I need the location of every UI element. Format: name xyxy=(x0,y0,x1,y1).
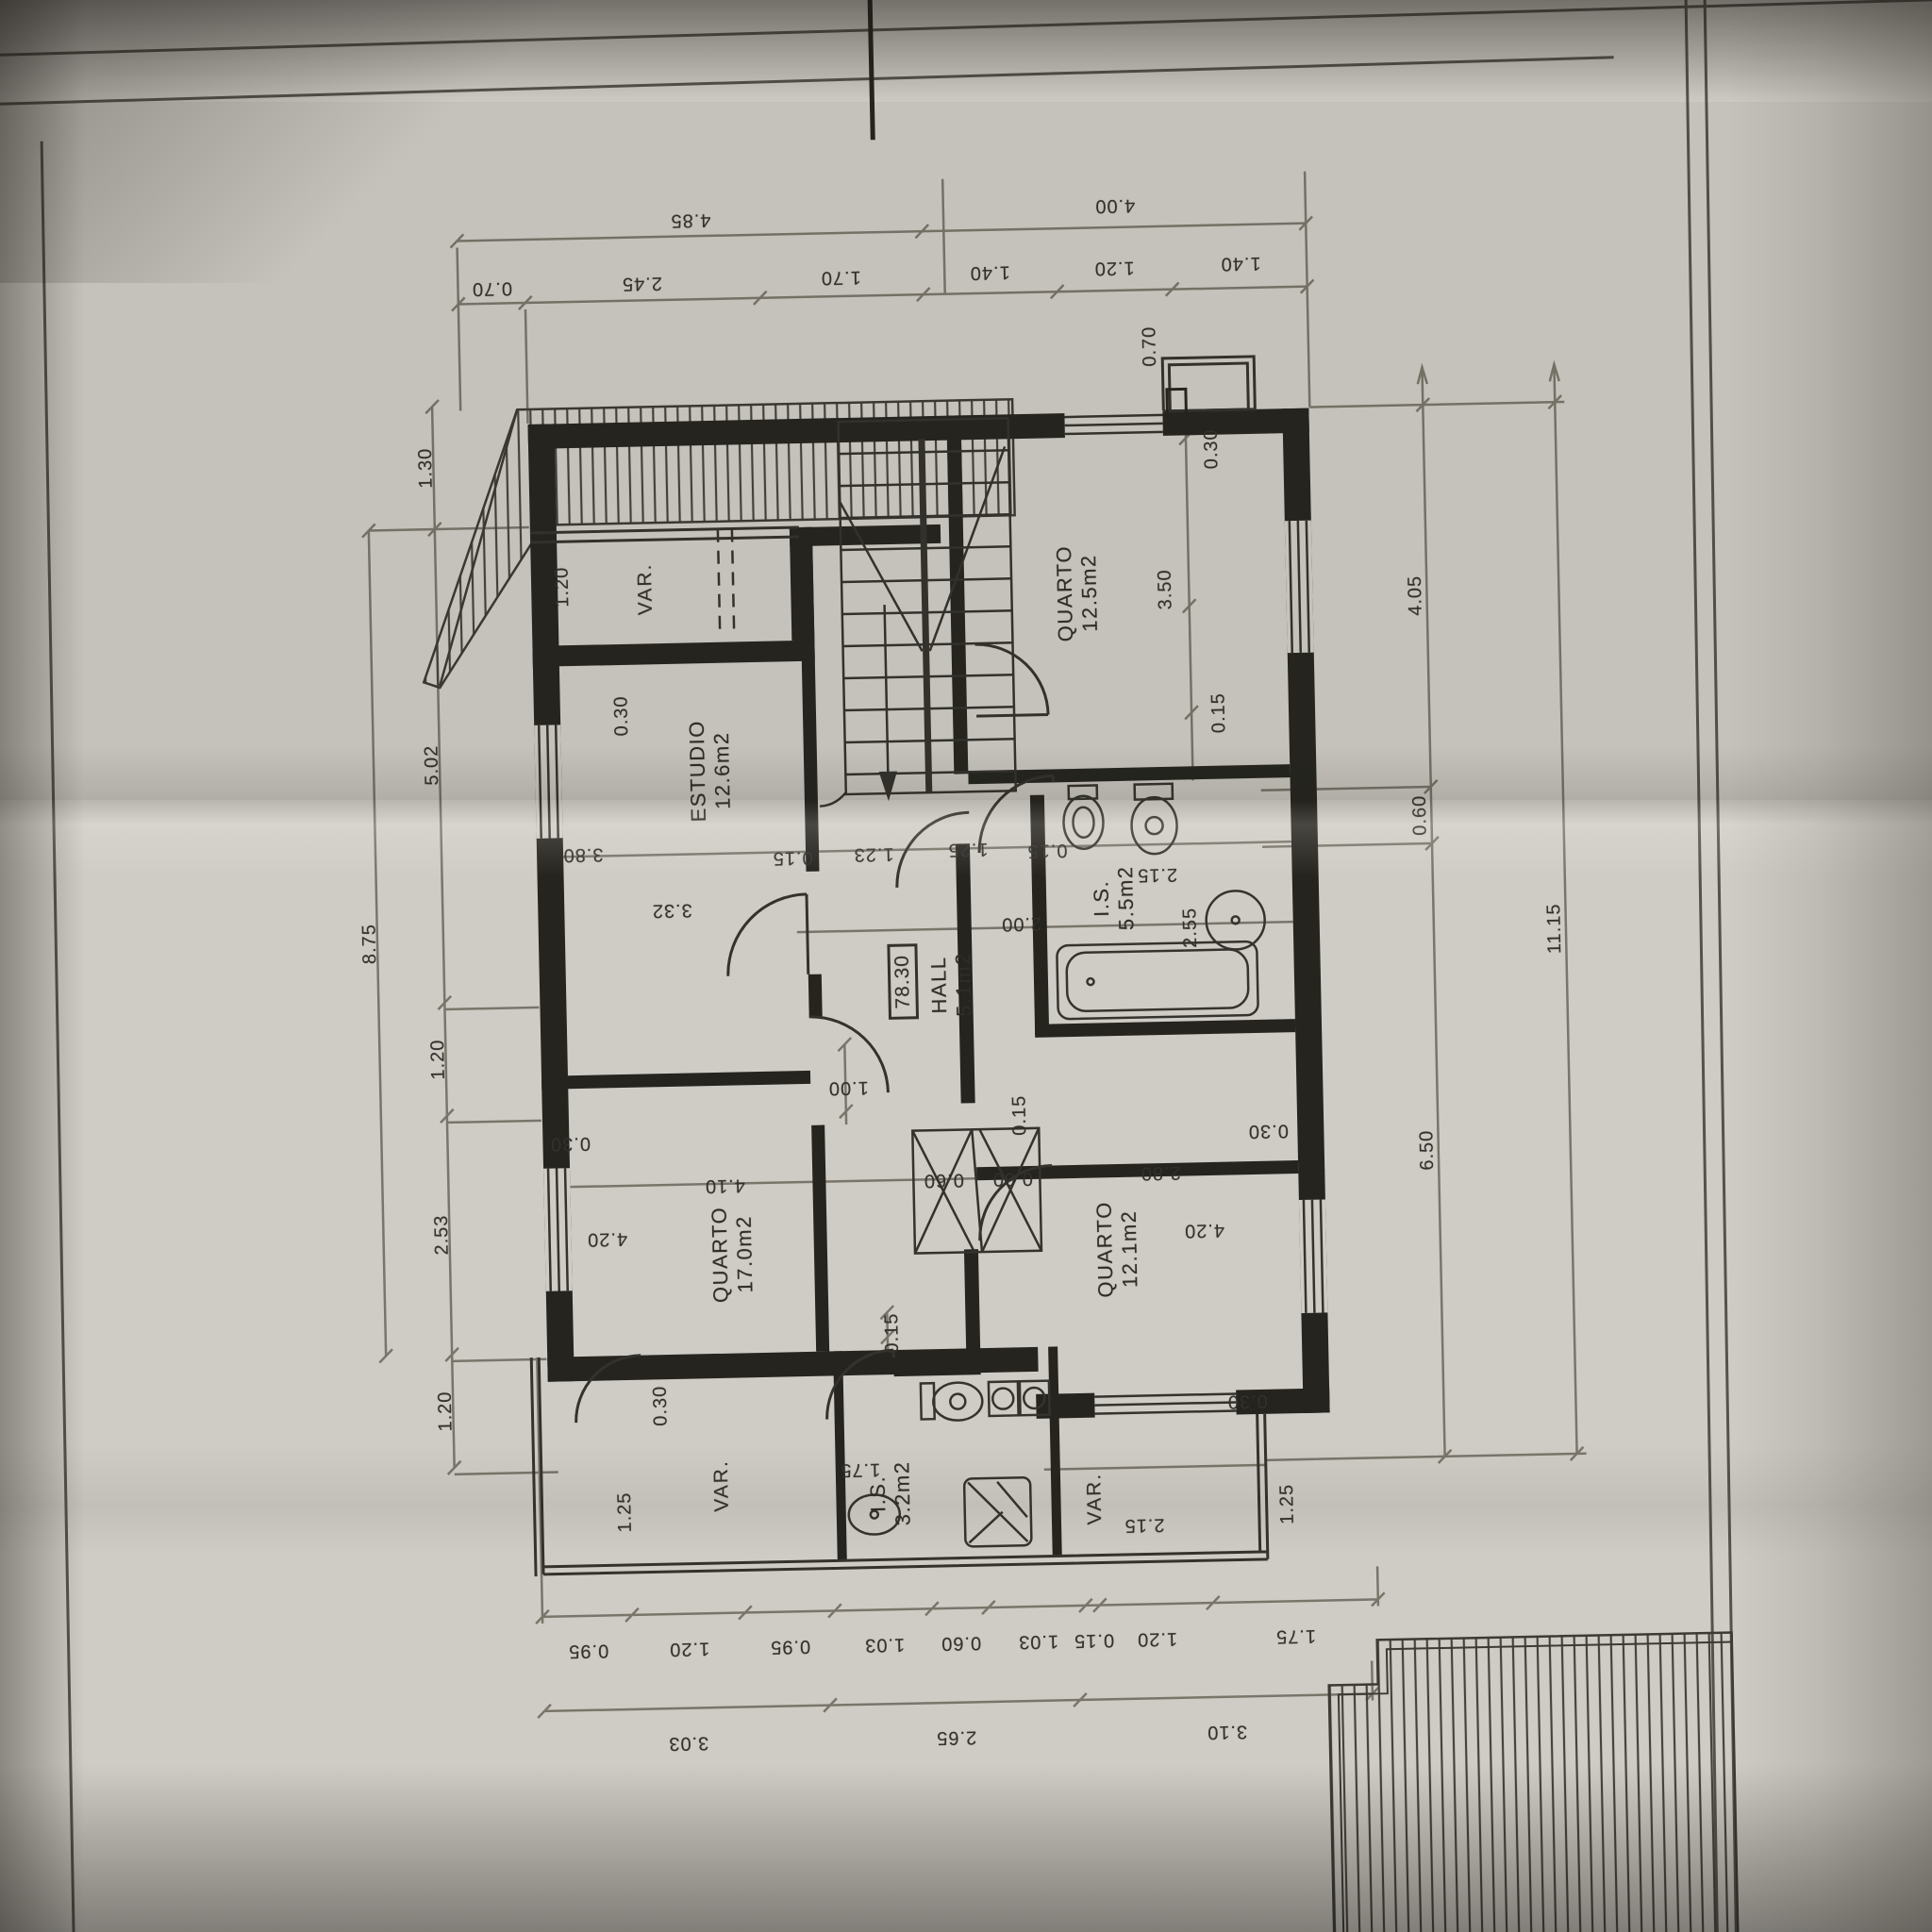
room-area: 17.0m2 xyxy=(732,1215,758,1293)
dim-label: 2.65 xyxy=(936,1726,976,1748)
room-label-quarto-1: QUARTO 12.5m2 xyxy=(1052,544,1104,641)
dim-label: 2.53 xyxy=(431,1214,453,1255)
dim-label: 0.15 xyxy=(1008,1095,1030,1136)
dim-label: 1.75 xyxy=(840,1458,880,1480)
level-mark: 78.30 xyxy=(887,944,918,1020)
dim-label: 5.02 xyxy=(421,744,442,785)
dim-label: 4.00 xyxy=(1094,194,1135,216)
dim-label: 3.32 xyxy=(652,899,692,921)
sheet-corner-letter: E xyxy=(876,0,899,1)
dim-label: 2.15 xyxy=(1137,863,1177,885)
dim-label: 2.15 xyxy=(1124,1514,1164,1536)
dim-label: 0.30 xyxy=(650,1386,672,1426)
dim-label: 0.60 xyxy=(1409,795,1431,836)
plan-sheet: E QUARTO 12.5m2 ESTUDIO 12.6m2 HALL 5.1m… xyxy=(0,0,1932,1932)
var-label-top: VAR. xyxy=(634,562,658,615)
dim-label: 1.40 xyxy=(1220,252,1260,274)
dim-label: 8.75 xyxy=(358,924,380,964)
dim-label: 2.80 xyxy=(1141,1161,1181,1183)
room-area: 12.5m2 xyxy=(1077,554,1104,632)
dim-label: 3.03 xyxy=(668,1732,708,1754)
dim-label: 0.30 xyxy=(610,695,632,736)
dim-label: 1.25 xyxy=(1276,1484,1298,1524)
dim-label: 4.20 xyxy=(1184,1220,1224,1241)
photo-background: E QUARTO 12.5m2 ESTUDIO 12.6m2 HALL 5.1m… xyxy=(0,0,1932,1932)
room-area: 12.6m2 xyxy=(709,731,736,809)
dim-label: 11.15 xyxy=(1543,903,1566,954)
room-label-quarto-3: QUARTO 12.1m2 xyxy=(1091,1200,1143,1297)
dim-label: 0.30 xyxy=(550,1133,591,1155)
dim-label: 4.10 xyxy=(705,1174,745,1196)
dim-label: 4.85 xyxy=(670,209,710,231)
room-area: 12.1m2 xyxy=(1117,1209,1143,1288)
room-name: I.S. xyxy=(1089,880,1114,918)
dim-label: 1.20 xyxy=(551,567,573,608)
dim-label: 1.00 xyxy=(828,1076,869,1098)
dim-label: 1.25 xyxy=(614,1491,636,1532)
dim-label: 6.50 xyxy=(1416,1129,1438,1170)
plan-labels: E QUARTO 12.5m2 ESTUDIO 12.6m2 HALL 5.1m… xyxy=(0,0,1932,1932)
dim-label: 4.05 xyxy=(1405,575,1426,616)
room-area: 3.2m2 xyxy=(891,1460,917,1525)
dim-label: 0.95 xyxy=(568,1640,608,1661)
dim-label: 0.30 xyxy=(1201,428,1223,469)
dim-label: 0.15 xyxy=(1207,692,1229,733)
dim-label: 1.20 xyxy=(1093,257,1134,278)
dim-label: 3.50 xyxy=(1155,569,1176,609)
room-name: ESTUDIO xyxy=(685,720,712,823)
room-name: I.S. xyxy=(866,1475,891,1513)
dim-label: 1.25 xyxy=(947,839,988,860)
var-label-bottom-left: VAR. xyxy=(710,1459,734,1512)
dim-label: 2.45 xyxy=(622,273,662,294)
dim-label: 1.20 xyxy=(427,1039,449,1079)
dim-label: 1.20 xyxy=(435,1391,457,1431)
dim-label: 0.60 xyxy=(924,1169,964,1191)
dim-label: 0.60 xyxy=(941,1632,981,1654)
dim-label: 0.15 xyxy=(881,1312,903,1353)
dim-label: 1.23 xyxy=(853,843,893,865)
dim-label: 3.80 xyxy=(562,843,603,865)
dim-label: 0.15 xyxy=(1074,1629,1114,1651)
dim-label: 0.70 xyxy=(472,277,512,299)
dim-label: 3.10 xyxy=(1207,1721,1247,1742)
dim-label: 1.20 xyxy=(1137,1628,1177,1650)
dim-label: 1.75 xyxy=(1275,1625,1316,1647)
dim-label: 4.20 xyxy=(587,1228,627,1250)
dim-label: 0.70 xyxy=(1139,325,1160,366)
dim-label: 0.30 xyxy=(1248,1120,1289,1141)
dim-label: 1.40 xyxy=(970,261,1010,283)
room-label-estudio: ESTUDIO 12.6m2 xyxy=(685,719,737,822)
room-area: 5.1m2 xyxy=(951,952,977,1017)
dim-label: 0.95 xyxy=(770,1636,810,1657)
room-name: HALL xyxy=(926,956,953,1014)
dim-label: 0.15 xyxy=(772,847,812,869)
var-label-bottom-right: VAR. xyxy=(1083,1473,1107,1525)
dim-label: 2.00 xyxy=(1001,912,1041,934)
room-label-is-1: I.S. 5.5m2 xyxy=(1089,865,1140,931)
dim-label: 1.03 xyxy=(1018,1630,1058,1652)
room-name: QUARTO xyxy=(1052,545,1079,642)
dim-label: 0.60 xyxy=(992,1168,1033,1190)
room-name: QUARTO xyxy=(1091,1201,1119,1298)
room-name: QUARTO xyxy=(708,1206,735,1303)
dim-label: 1.20 xyxy=(669,1638,709,1659)
dim-label: 1.30 xyxy=(415,448,437,489)
room-area: 5.5m2 xyxy=(1113,865,1140,930)
dim-label: 0.15 xyxy=(1026,840,1067,861)
dim-label: 0.30 xyxy=(1227,1391,1268,1412)
room-label-hall: HALL 5.1m2 xyxy=(926,952,977,1018)
dim-label: 1.70 xyxy=(821,266,861,288)
dim-label: 2.55 xyxy=(1179,908,1201,948)
room-label-quarto-2: QUARTO 17.0m2 xyxy=(708,1206,759,1303)
dim-label: 1.03 xyxy=(864,1634,905,1656)
